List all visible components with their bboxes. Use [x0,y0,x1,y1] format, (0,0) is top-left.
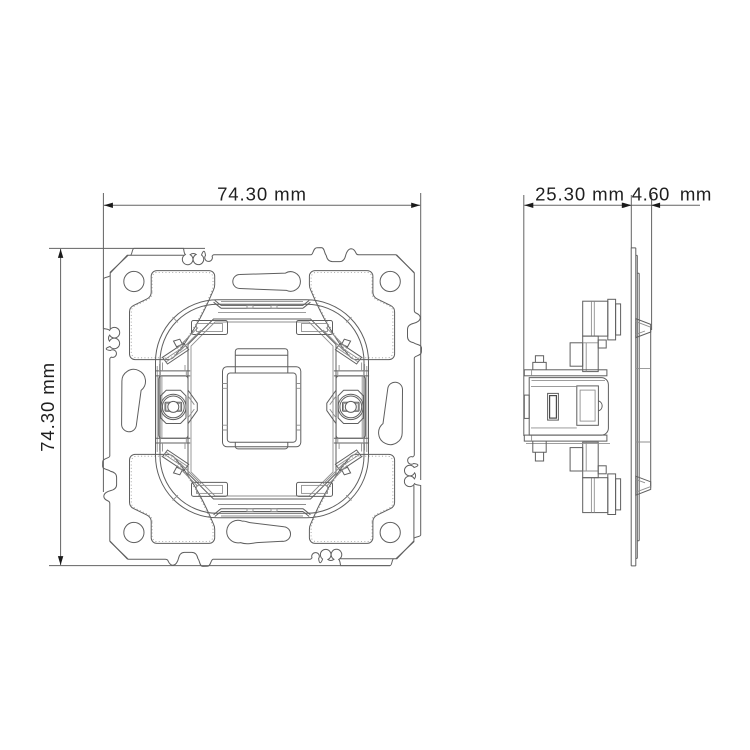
svg-text:25.30 mm: 25.30 mm [535,184,625,205]
svg-text:4.60 mm: 4.60 mm [632,184,712,205]
svg-text:74.30 mm: 74.30 mm [37,362,58,452]
svg-text:74.30 mm: 74.30 mm [217,184,307,205]
